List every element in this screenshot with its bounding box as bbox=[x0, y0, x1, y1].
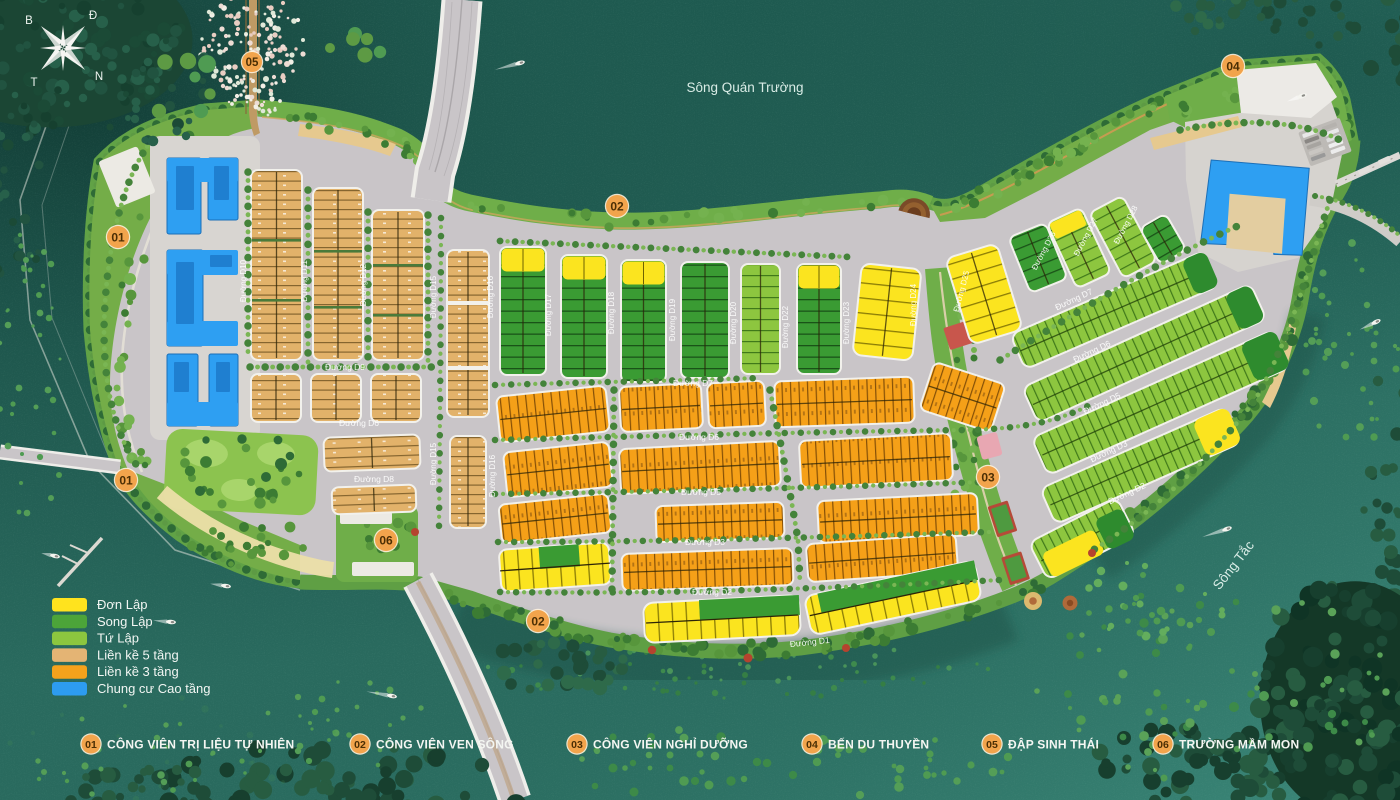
svg-text:Chung cư Cao tầng: Chung cư Cao tầng bbox=[97, 681, 211, 696]
svg-text:01: 01 bbox=[85, 739, 97, 751]
svg-text:Đường D17: Đường D17 bbox=[544, 293, 553, 336]
svg-text:ĐẬP SINH THÁI: ĐẬP SINH THÁI bbox=[1008, 737, 1099, 752]
svg-text:05: 05 bbox=[986, 739, 998, 751]
svg-text:Đường D15: Đường D15 bbox=[429, 275, 438, 318]
svg-text:Đ: Đ bbox=[89, 10, 97, 22]
svg-text:Đường D22: Đường D22 bbox=[781, 305, 790, 348]
svg-text:Đường D9: Đường D9 bbox=[325, 362, 365, 372]
svg-text:Đường D16: Đường D16 bbox=[488, 454, 497, 497]
svg-text:Đường D3: Đường D3 bbox=[685, 537, 725, 547]
svg-text:B: B bbox=[25, 15, 33, 27]
svg-text:01: 01 bbox=[111, 230, 125, 244]
svg-text:Sông Quán Trường: Sông Quán Trường bbox=[687, 80, 804, 95]
svg-text:Song Lập: Song Lập bbox=[97, 614, 153, 629]
svg-text:Đường D6: Đường D6 bbox=[679, 432, 719, 442]
svg-text:02: 02 bbox=[354, 739, 366, 751]
svg-text:T: T bbox=[30, 77, 37, 89]
svg-text:Đường D12: Đường D12 bbox=[359, 263, 368, 306]
svg-text:05: 05 bbox=[246, 57, 259, 69]
svg-text:CÔNG VIÊN TRỊ LIỆU TỰ NHIÊN: CÔNG VIÊN TRỊ LIỆU TỰ NHIÊN bbox=[107, 737, 294, 752]
svg-text:Đường D6: Đường D6 bbox=[339, 418, 379, 428]
svg-text:Đường D5: Đường D5 bbox=[681, 487, 721, 497]
svg-text:Liền kề 5 tầng: Liền kề 5 tầng bbox=[97, 647, 179, 662]
svg-text:02: 02 bbox=[531, 614, 545, 628]
svg-text:BẾN DU THUYỀN: BẾN DU THUYỀN bbox=[828, 737, 929, 752]
svg-text:CÔNG VIÊN VEN SÔNG: CÔNG VIÊN VEN SÔNG bbox=[376, 737, 514, 752]
svg-text:03: 03 bbox=[571, 739, 583, 751]
svg-text:02: 02 bbox=[610, 199, 624, 213]
svg-text:Đơn Lập: Đơn Lập bbox=[97, 597, 147, 612]
svg-text:CÔNG VIÊN NGHỈ DƯỠNG: CÔNG VIÊN NGHỈ DƯỠNG bbox=[593, 737, 748, 752]
svg-text:Đường D10: Đường D10 bbox=[239, 259, 248, 302]
svg-text:Đường D7: Đường D7 bbox=[673, 378, 713, 388]
svg-text:04: 04 bbox=[806, 739, 818, 751]
svg-text:06: 06 bbox=[379, 533, 393, 547]
svg-text:Đường D23: Đường D23 bbox=[842, 301, 851, 344]
svg-text:Đường D2: Đường D2 bbox=[692, 587, 732, 597]
svg-text:Đường D8: Đường D8 bbox=[354, 474, 394, 484]
svg-text:Đường D24: Đường D24 bbox=[909, 283, 918, 326]
svg-text:01: 01 bbox=[119, 473, 133, 487]
svg-text:Đường D11: Đường D11 bbox=[300, 260, 309, 302]
svg-text:N: N bbox=[95, 71, 103, 83]
svg-text:Đường D20: Đường D20 bbox=[729, 301, 738, 344]
svg-text:TRƯỜNG MẦM MON: TRƯỜNG MẦM MON bbox=[1179, 737, 1299, 752]
svg-text:Tứ Lập: Tứ Lập bbox=[97, 631, 139, 646]
svg-text:04: 04 bbox=[1226, 59, 1240, 73]
svg-text:Đường D16: Đường D16 bbox=[486, 275, 495, 318]
svg-text:06: 06 bbox=[1157, 739, 1169, 751]
svg-text:Đường D19: Đường D19 bbox=[668, 298, 677, 341]
svg-text:03: 03 bbox=[981, 470, 995, 484]
svg-text:Đường D15: Đường D15 bbox=[429, 442, 438, 485]
svg-text:Liền kề 3 tầng: Liền kề 3 tầng bbox=[97, 664, 179, 679]
svg-text:Đường D18: Đường D18 bbox=[607, 291, 616, 334]
